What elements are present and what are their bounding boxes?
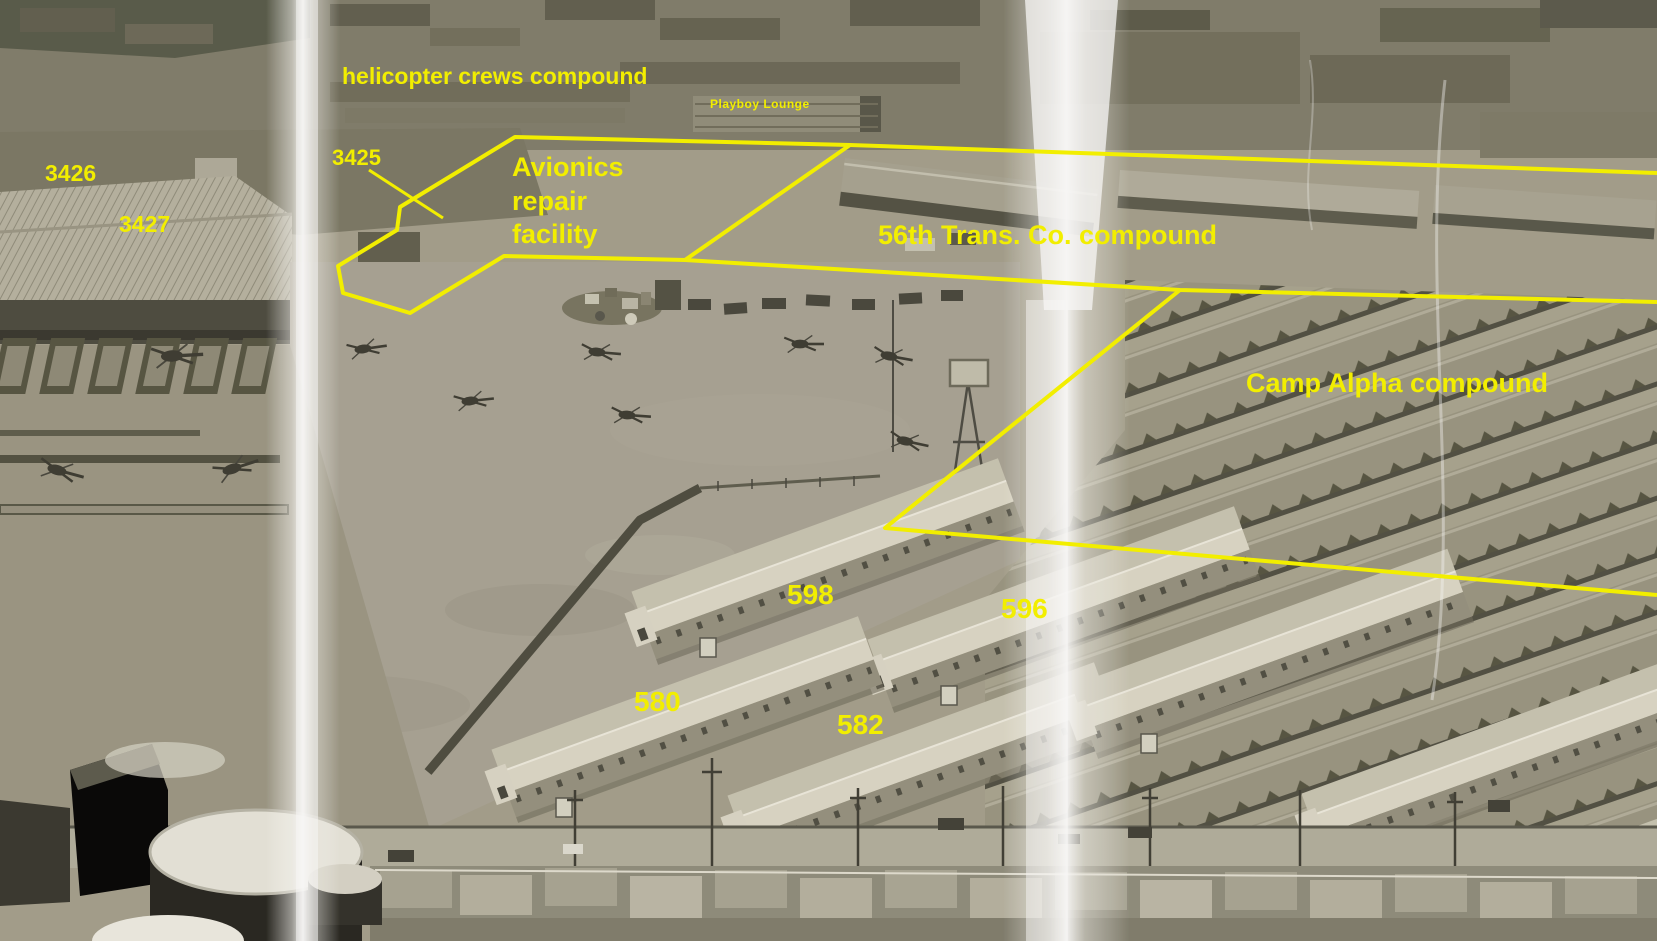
playboy-lounge-label: Playboy Lounge: [710, 97, 810, 111]
tone-overlay: [0, 0, 1657, 941]
building-598-label: 598: [787, 579, 834, 610]
avionics-label-line2: repair: [512, 186, 588, 216]
building-580-label: 580: [634, 686, 681, 717]
aerial-photo-canvas: helicopter crews compound Playboy Lounge…: [0, 0, 1657, 941]
building-582-label: 582: [837, 709, 884, 740]
helicopter-crews-compound-label: helicopter crews compound: [342, 63, 647, 89]
avionics-label-line1: Avionics: [512, 152, 624, 182]
photo-background: [0, 0, 1657, 941]
annotated-aerial-photo: helicopter crews compound Playboy Lounge…: [0, 0, 1657, 941]
camp-alpha-label: Camp Alpha compound: [1246, 368, 1548, 398]
avionics-label-line3: facility: [512, 219, 598, 249]
building-596-label: 596: [1001, 593, 1048, 624]
building-3427-label: 3427: [119, 211, 170, 237]
trans-compound-label: 56th Trans. Co. compound: [878, 220, 1217, 250]
building-3425-label: 3425: [332, 145, 381, 170]
building-3426-label: 3426: [45, 160, 96, 186]
